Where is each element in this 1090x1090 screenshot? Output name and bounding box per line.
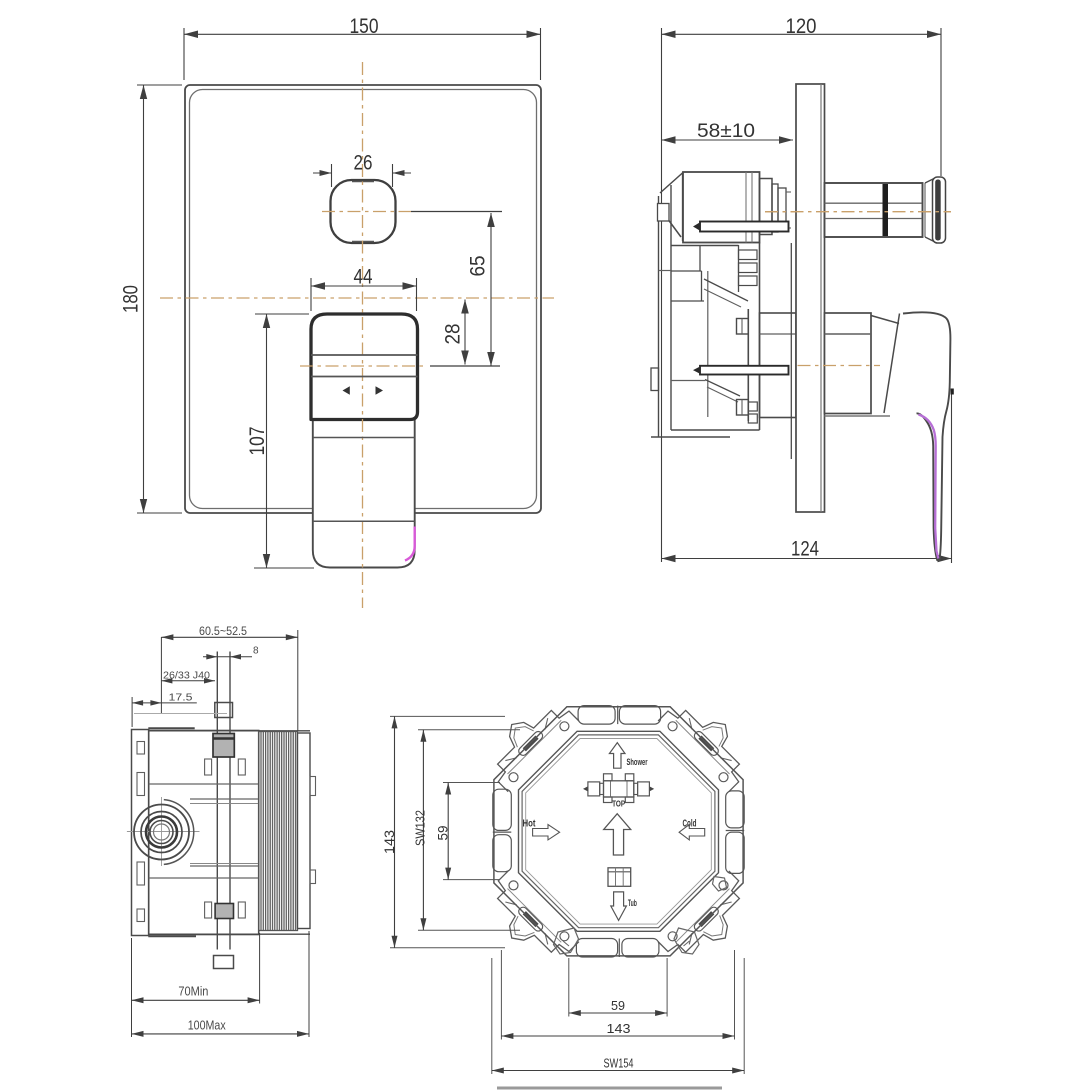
svg-text:124: 124: [791, 538, 819, 561]
svg-text:Hot: Hot: [523, 819, 537, 830]
svg-text:100Max: 100Max: [188, 1019, 227, 1033]
svg-text:Tub: Tub: [628, 898, 637, 909]
svg-text:26: 26: [354, 152, 373, 175]
svg-text:28: 28: [442, 324, 465, 345]
svg-text:TOP: TOP: [612, 800, 626, 809]
svg-text:26/33 J40: 26/33 J40: [163, 671, 210, 682]
svg-text:180: 180: [120, 285, 143, 313]
svg-text:65: 65: [467, 256, 490, 277]
svg-text:59: 59: [611, 998, 625, 1013]
svg-text:143: 143: [607, 1021, 631, 1036]
svg-text:59: 59: [436, 826, 451, 841]
svg-text:58±10: 58±10: [697, 121, 755, 142]
svg-text:60.5~52.5: 60.5~52.5: [199, 626, 247, 638]
svg-text:107: 107: [246, 427, 269, 456]
svg-text:143: 143: [381, 830, 397, 854]
svg-text:150: 150: [350, 15, 379, 38]
svg-text:Shower: Shower: [627, 757, 648, 768]
svg-text:8: 8: [253, 646, 259, 657]
svg-text:44: 44: [354, 266, 373, 289]
svg-text:70Min: 70Min: [178, 985, 208, 999]
svg-text:120: 120: [786, 15, 817, 38]
svg-text:17.5: 17.5: [169, 693, 194, 704]
svg-text:SW154: SW154: [604, 1056, 634, 1071]
svg-text:SW132: SW132: [413, 810, 428, 846]
